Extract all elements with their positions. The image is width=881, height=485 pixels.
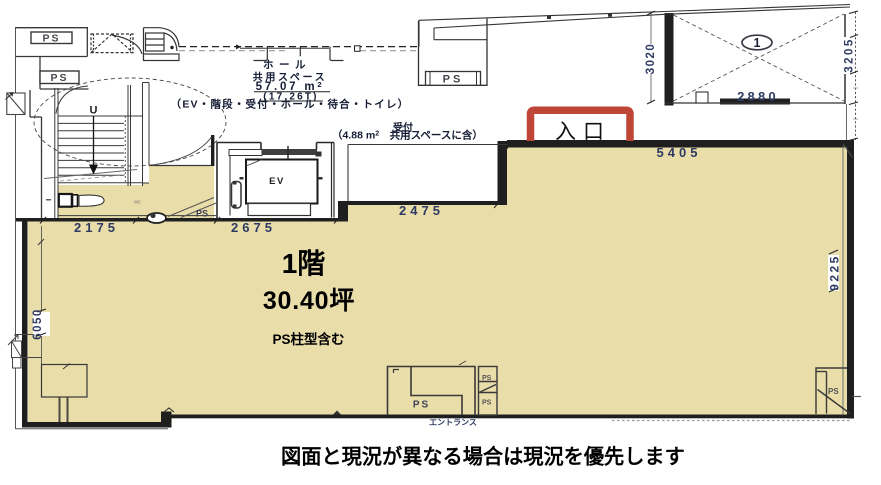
svg-text:（4.88 m2 共用スペースに含）: （4.88 m2 共用スペースに含） bbox=[332, 129, 483, 142]
svg-text:ホール: ホール bbox=[263, 59, 311, 71]
svg-text:PS: PS bbox=[828, 387, 839, 396]
svg-text:9225: 9225 bbox=[828, 254, 842, 291]
svg-text:3020: 3020 bbox=[645, 43, 657, 75]
svg-text:PS: PS bbox=[196, 209, 208, 219]
svg-text:5405: 5405 bbox=[657, 145, 702, 160]
svg-text:1階: 1階 bbox=[282, 248, 326, 279]
svg-text:（EV・階段・受付・ホール・待合・トイレ）: （EV・階段・受付・ホール・待合・トイレ） bbox=[171, 98, 410, 111]
svg-text:EV: EV bbox=[269, 176, 285, 187]
svg-text:PS: PS bbox=[50, 72, 68, 84]
svg-text:wc: wc bbox=[133, 200, 141, 206]
svg-text:2475: 2475 bbox=[399, 203, 444, 218]
svg-text:30.40坪: 30.40坪 bbox=[263, 287, 355, 315]
svg-text:図面と現況が異なる場合は現況を優先します: 図面と現況が異なる場合は現況を優先します bbox=[281, 445, 685, 469]
svg-text:3205: 3205 bbox=[844, 37, 856, 73]
svg-text:PS: PS bbox=[42, 32, 60, 44]
svg-text:入口: 入口 bbox=[555, 121, 611, 144]
svg-text:2675: 2675 bbox=[231, 220, 276, 235]
svg-text:1: 1 bbox=[754, 36, 761, 50]
svg-text:PS柱型含む: PS柱型含む bbox=[272, 331, 344, 347]
svg-text:PS: PS bbox=[443, 73, 464, 85]
svg-text:PS: PS bbox=[482, 375, 492, 382]
svg-text:U: U bbox=[90, 105, 98, 117]
svg-text:エントランス: エントランス bbox=[429, 418, 477, 427]
svg-text:PS: PS bbox=[482, 400, 492, 407]
svg-text:2175: 2175 bbox=[74, 220, 119, 235]
svg-text:PS: PS bbox=[413, 400, 430, 411]
svg-text:6050: 6050 bbox=[32, 308, 44, 340]
svg-text:2880: 2880 bbox=[737, 89, 779, 104]
